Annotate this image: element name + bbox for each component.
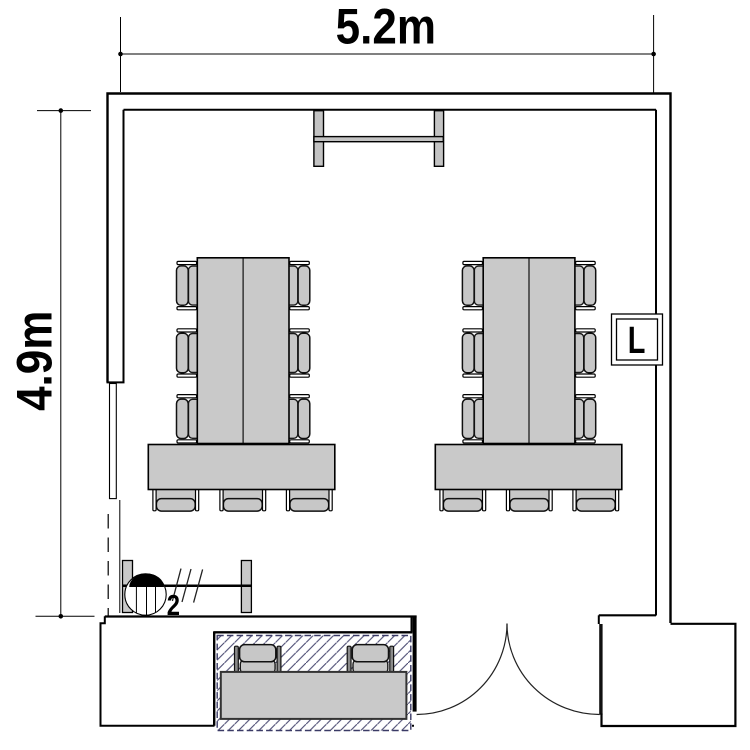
svg-text:5.2m: 5.2m bbox=[336, 0, 436, 54]
svg-text:4.9m: 4.9m bbox=[6, 311, 62, 411]
svg-text:2: 2 bbox=[167, 589, 180, 622]
svg-text:L: L bbox=[628, 319, 646, 362]
